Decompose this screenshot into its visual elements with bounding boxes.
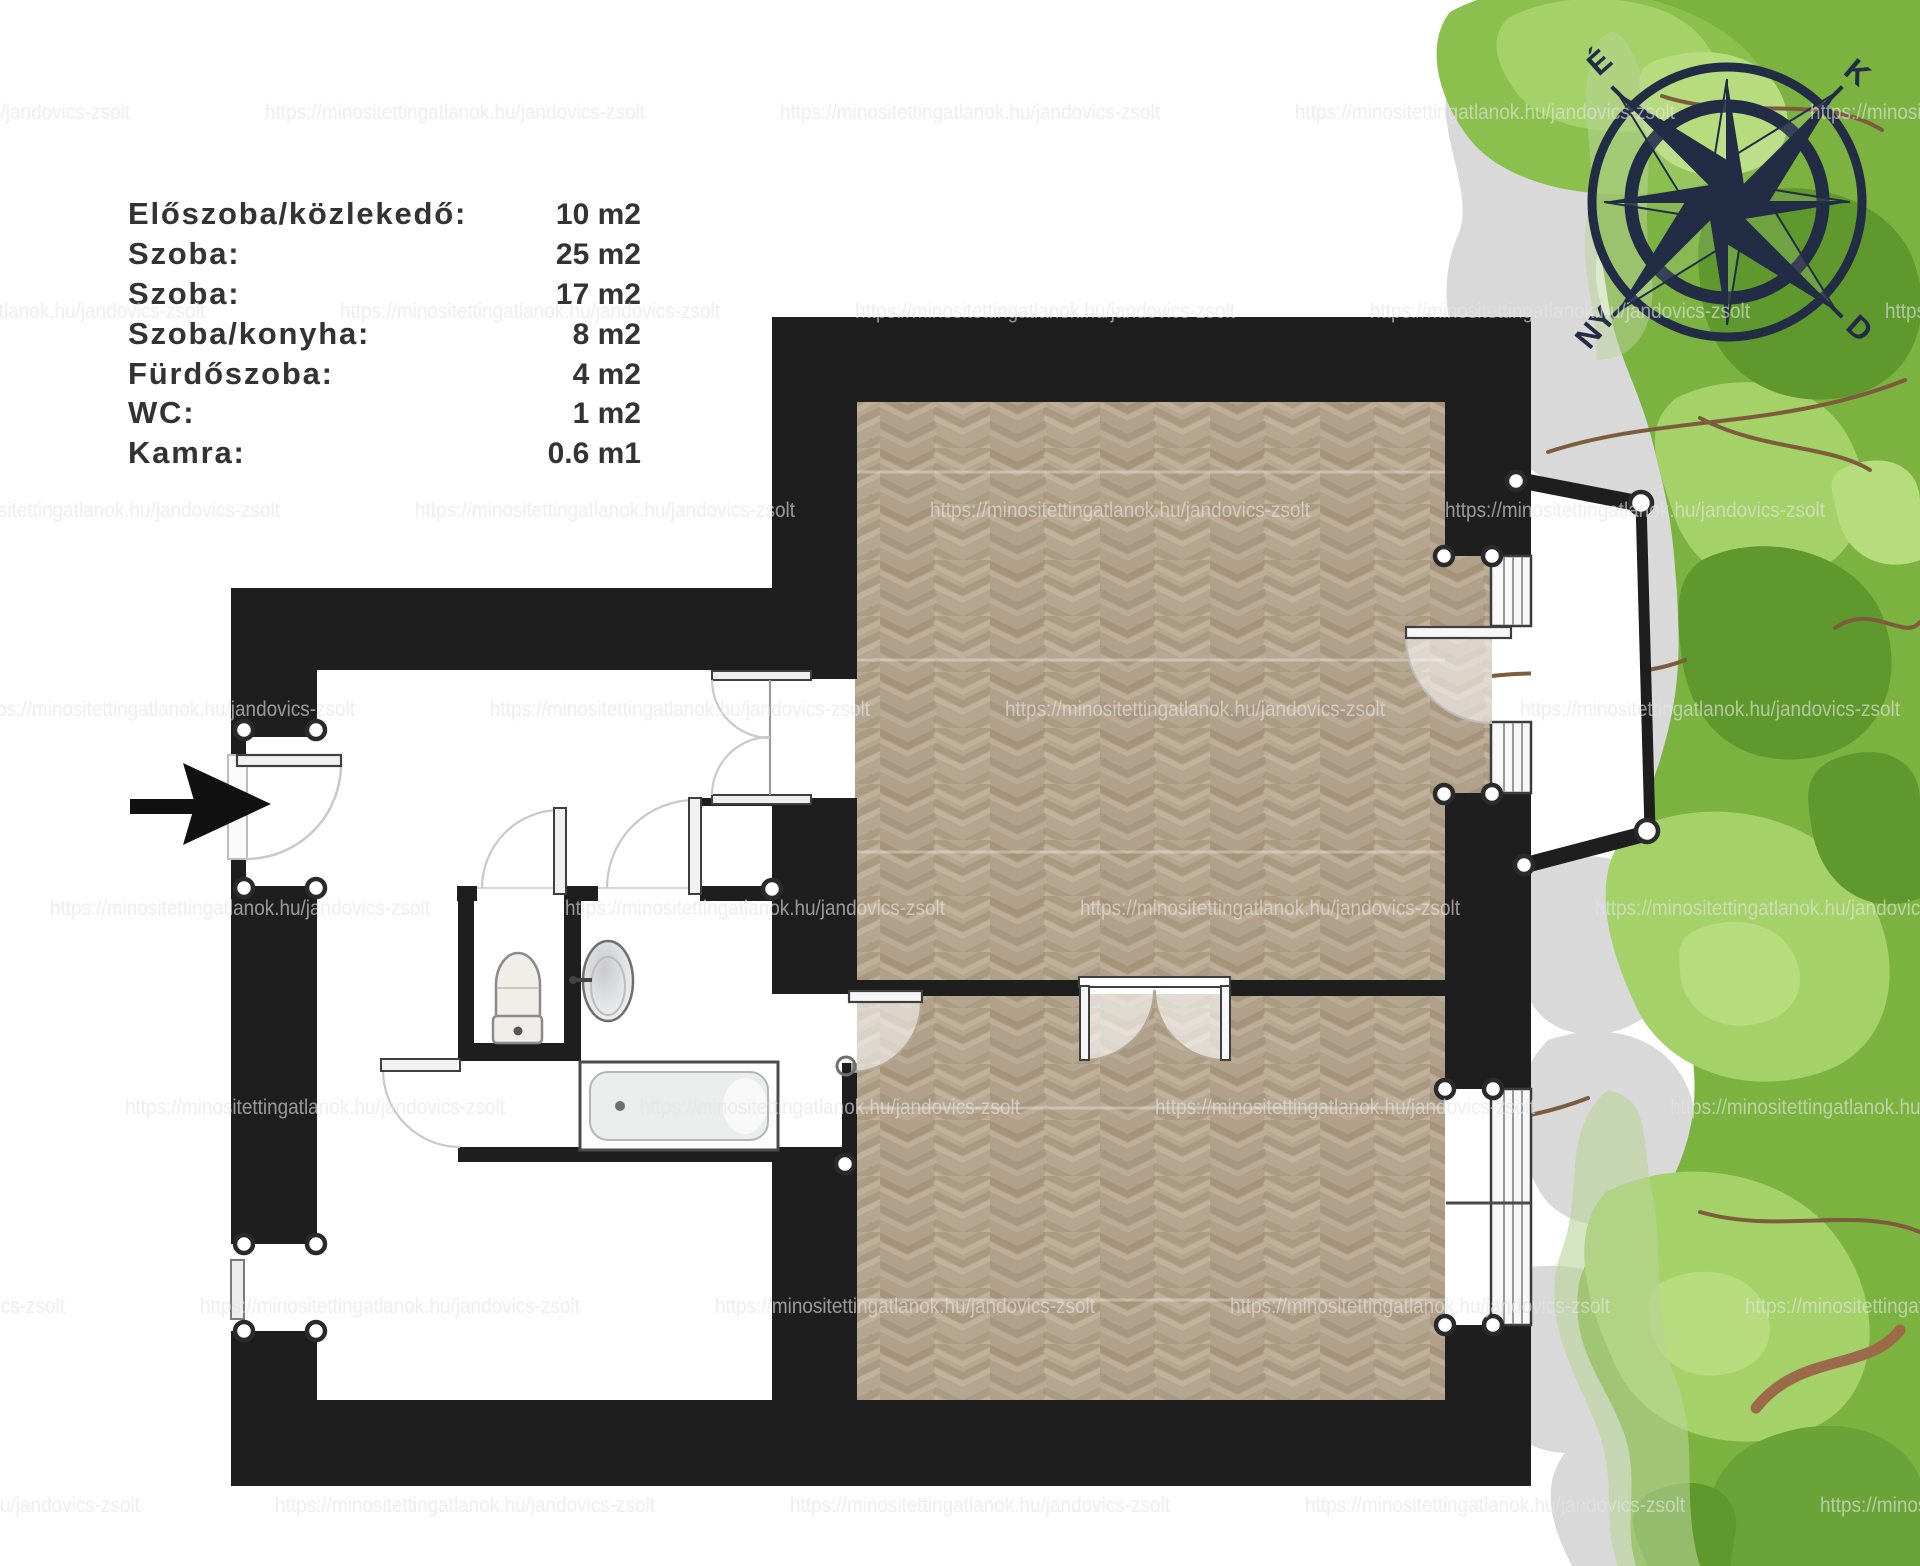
svg-text:https://minositettingatlanok.h: https://minositettingatlanok.hu/jandovic… <box>1370 300 1750 323</box>
svg-text:https://minositettingatlanok.h: https://minositettingatlanok.hu/jandovic… <box>1810 101 1920 124</box>
svg-text:https://minositettingatlanok.h: https://minositettingatlanok.hu/jandovic… <box>1670 1096 1920 1119</box>
svg-text:https://minositettingatlanok.h: https://minositettingatlanok.hu/jandovic… <box>265 101 645 124</box>
svg-text:https://minositettingatlanok.h: https://minositettingatlanok.hu/jandovic… <box>50 897 430 920</box>
svg-text:https://minositettingatlanok.h: https://minositettingatlanok.hu/jandovic… <box>790 1494 1170 1517</box>
svg-text:https://minositettingatlanok.h: https://minositettingatlanok.hu/jandovic… <box>1005 698 1385 721</box>
svg-text:https://minositettingatlanok.h: https://minositettingatlanok.hu/jandovic… <box>415 499 795 522</box>
svg-text:https://minositettingatlanok.h: https://minositettingatlanok.hu/jandovic… <box>1295 101 1675 124</box>
svg-text:https://minositettingatlanok.h: https://minositettingatlanok.hu/jandovic… <box>0 1494 140 1517</box>
svg-text:https://minositettingatlanok.h: https://minositettingatlanok.hu/jandovic… <box>1745 1295 1920 1318</box>
svg-text:10 m2: 10 m2 <box>556 198 641 231</box>
svg-text:https://minositettingatlanok.h: https://minositettingatlanok.hu/jandovic… <box>780 101 1160 124</box>
svg-text:Kamra:: Kamra: <box>128 435 246 470</box>
svg-text:https://minositettingatlanok.h: https://minositettingatlanok.hu/jandovic… <box>0 698 355 721</box>
svg-text:WC:: WC: <box>128 395 195 430</box>
svg-text:Szoba:: Szoba: <box>128 236 240 271</box>
svg-text:https://minositettingatlanok.h: https://minositettingatlanok.hu/jandovic… <box>715 1295 1095 1318</box>
svg-text:https://minositettingatlanok.h: https://minositettingatlanok.hu/jandovic… <box>0 499 280 522</box>
svg-text:https://minositettingatlanok.h: https://minositettingatlanok.hu/jandovic… <box>1820 1494 1920 1517</box>
svg-text:https://minositettingatlanok.h: https://minositettingatlanok.hu/jandovic… <box>340 300 720 323</box>
svg-text:Fürdőszoba:: Fürdőszoba: <box>128 356 334 391</box>
svg-text:25 m2: 25 m2 <box>556 238 641 271</box>
svg-text:https://minositettingatlanok.h: https://minositettingatlanok.hu/jandovic… <box>0 300 205 323</box>
svg-text:https://minositettingatlanok.h: https://minositettingatlanok.hu/jandovic… <box>0 1295 65 1318</box>
svg-text:https://minositettingatlanok.h: https://minositettingatlanok.hu/jandovic… <box>930 499 1310 522</box>
svg-text:https://minositettingatlanok.h: https://minositettingatlanok.hu/jandovic… <box>1305 1494 1685 1517</box>
svg-text:https://minositettingatlanok.h: https://minositettingatlanok.hu/jandovic… <box>1230 1295 1610 1318</box>
svg-text:https://minositettingatlanok.h: https://minositettingatlanok.hu/jandovic… <box>1885 300 1920 323</box>
svg-text:https://minositettingatlanok.h: https://minositettingatlanok.hu/jandovic… <box>0 101 130 124</box>
svg-text:Előszoba/közlekedő:: Előszoba/közlekedő: <box>128 196 467 231</box>
svg-text:4 m2: 4 m2 <box>573 358 641 391</box>
svg-text:0.6 m1: 0.6 m1 <box>548 437 641 470</box>
svg-text:https://minositettingatlanok.h: https://minositettingatlanok.hu/jandovic… <box>125 1096 505 1119</box>
svg-text:https://minositettingatlanok.h: https://minositettingatlanok.hu/jandovic… <box>1445 499 1825 522</box>
svg-text:https://minositettingatlanok.h: https://minositettingatlanok.hu/jandovic… <box>640 1096 1020 1119</box>
svg-text:https://minositettingatlanok.h: https://minositettingatlanok.hu/jandovic… <box>565 897 945 920</box>
svg-text:https://minositettingatlanok.h: https://minositettingatlanok.hu/jandovic… <box>275 1494 655 1517</box>
svg-text:https://minositettingatlanok.h: https://minositettingatlanok.hu/jandovic… <box>490 698 870 721</box>
svg-text:https://minositettingatlanok.h: https://minositettingatlanok.hu/jandovic… <box>855 300 1235 323</box>
svg-text:https://minositettingatlanok.h: https://minositettingatlanok.hu/jandovic… <box>1595 897 1920 920</box>
svg-text:https://minositettingatlanok.h: https://minositettingatlanok.hu/jandovic… <box>200 1295 580 1318</box>
svg-text:https://minositettingatlanok.h: https://minositettingatlanok.hu/jandovic… <box>1080 897 1460 920</box>
svg-text:1 m2: 1 m2 <box>573 397 641 430</box>
svg-text:https://minositettingatlanok.h: https://minositettingatlanok.hu/jandovic… <box>1155 1096 1535 1119</box>
svg-text:https://minositettingatlanok.h: https://minositettingatlanok.hu/jandovic… <box>1520 698 1900 721</box>
